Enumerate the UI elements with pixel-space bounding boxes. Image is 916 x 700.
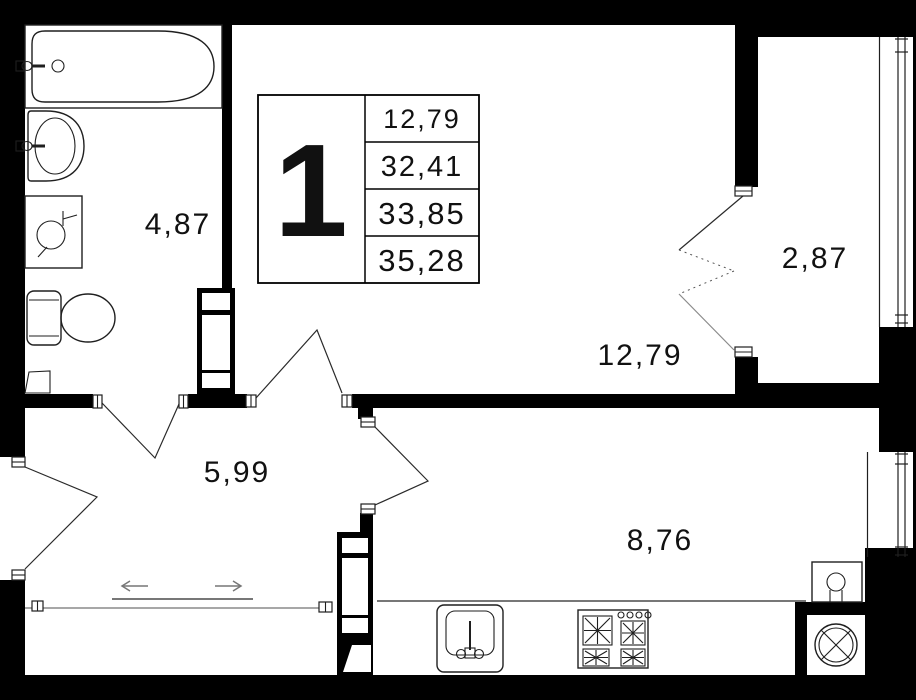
burner-icon [583,616,612,645]
balcony-glazing [880,37,909,327]
door-jamb [12,457,25,580]
kitchen-window [868,452,909,557]
living-room-door [246,330,352,407]
slide-right-arrow-icon [215,581,241,591]
cabinet [25,371,50,393]
legend: 1 12,79 32,41 33,85 35,28 [258,95,479,283]
floor-plan: 1 12,79 32,41 33,85 35,28 4,87 5,99 12,7… [0,0,916,700]
burner-icon [621,621,645,645]
vent-shaft-bathroom [197,288,235,397]
slide-left-arrow-icon [122,581,148,591]
kitchen-faucet-icon [457,621,484,659]
vent-shaft-hall [337,532,373,675]
room-label-balcony: 2,87 [782,242,848,275]
entry-door [12,457,97,580]
washing-machine [25,196,82,268]
kitchen-sink [437,605,503,672]
unit-number: 1 [274,117,347,264]
room-label-kitchen: 8,76 [627,524,693,557]
sliding-door [25,581,332,612]
burner-icon [583,649,609,666]
bathroom-sink [16,111,84,181]
stove [578,610,651,668]
bathtub [16,25,222,108]
washing-machine-icon [37,211,77,257]
room-label-hallway: 5,99 [204,456,270,489]
legend-value-4: 35,28 [378,243,466,278]
room-label-bathroom: 4,87 [145,208,211,241]
room-label-living: 12,79 [597,339,682,372]
balcony-door [679,186,752,357]
toilet [27,291,115,345]
legend-value-1: 12,79 [383,104,461,134]
legend-value-3: 33,85 [378,196,466,231]
burner-icon [621,649,645,666]
bathroom-door [93,395,188,458]
legend-value-2: 32,41 [381,151,464,183]
bath-drain-icon [52,60,64,72]
kitchen-door [361,417,428,514]
floor-plan-drawing: 1 12,79 32,41 33,85 35,28 4,87 5,99 12,7… [0,0,916,700]
water-heater [812,562,862,602]
stove-knobs-icon [618,612,651,618]
